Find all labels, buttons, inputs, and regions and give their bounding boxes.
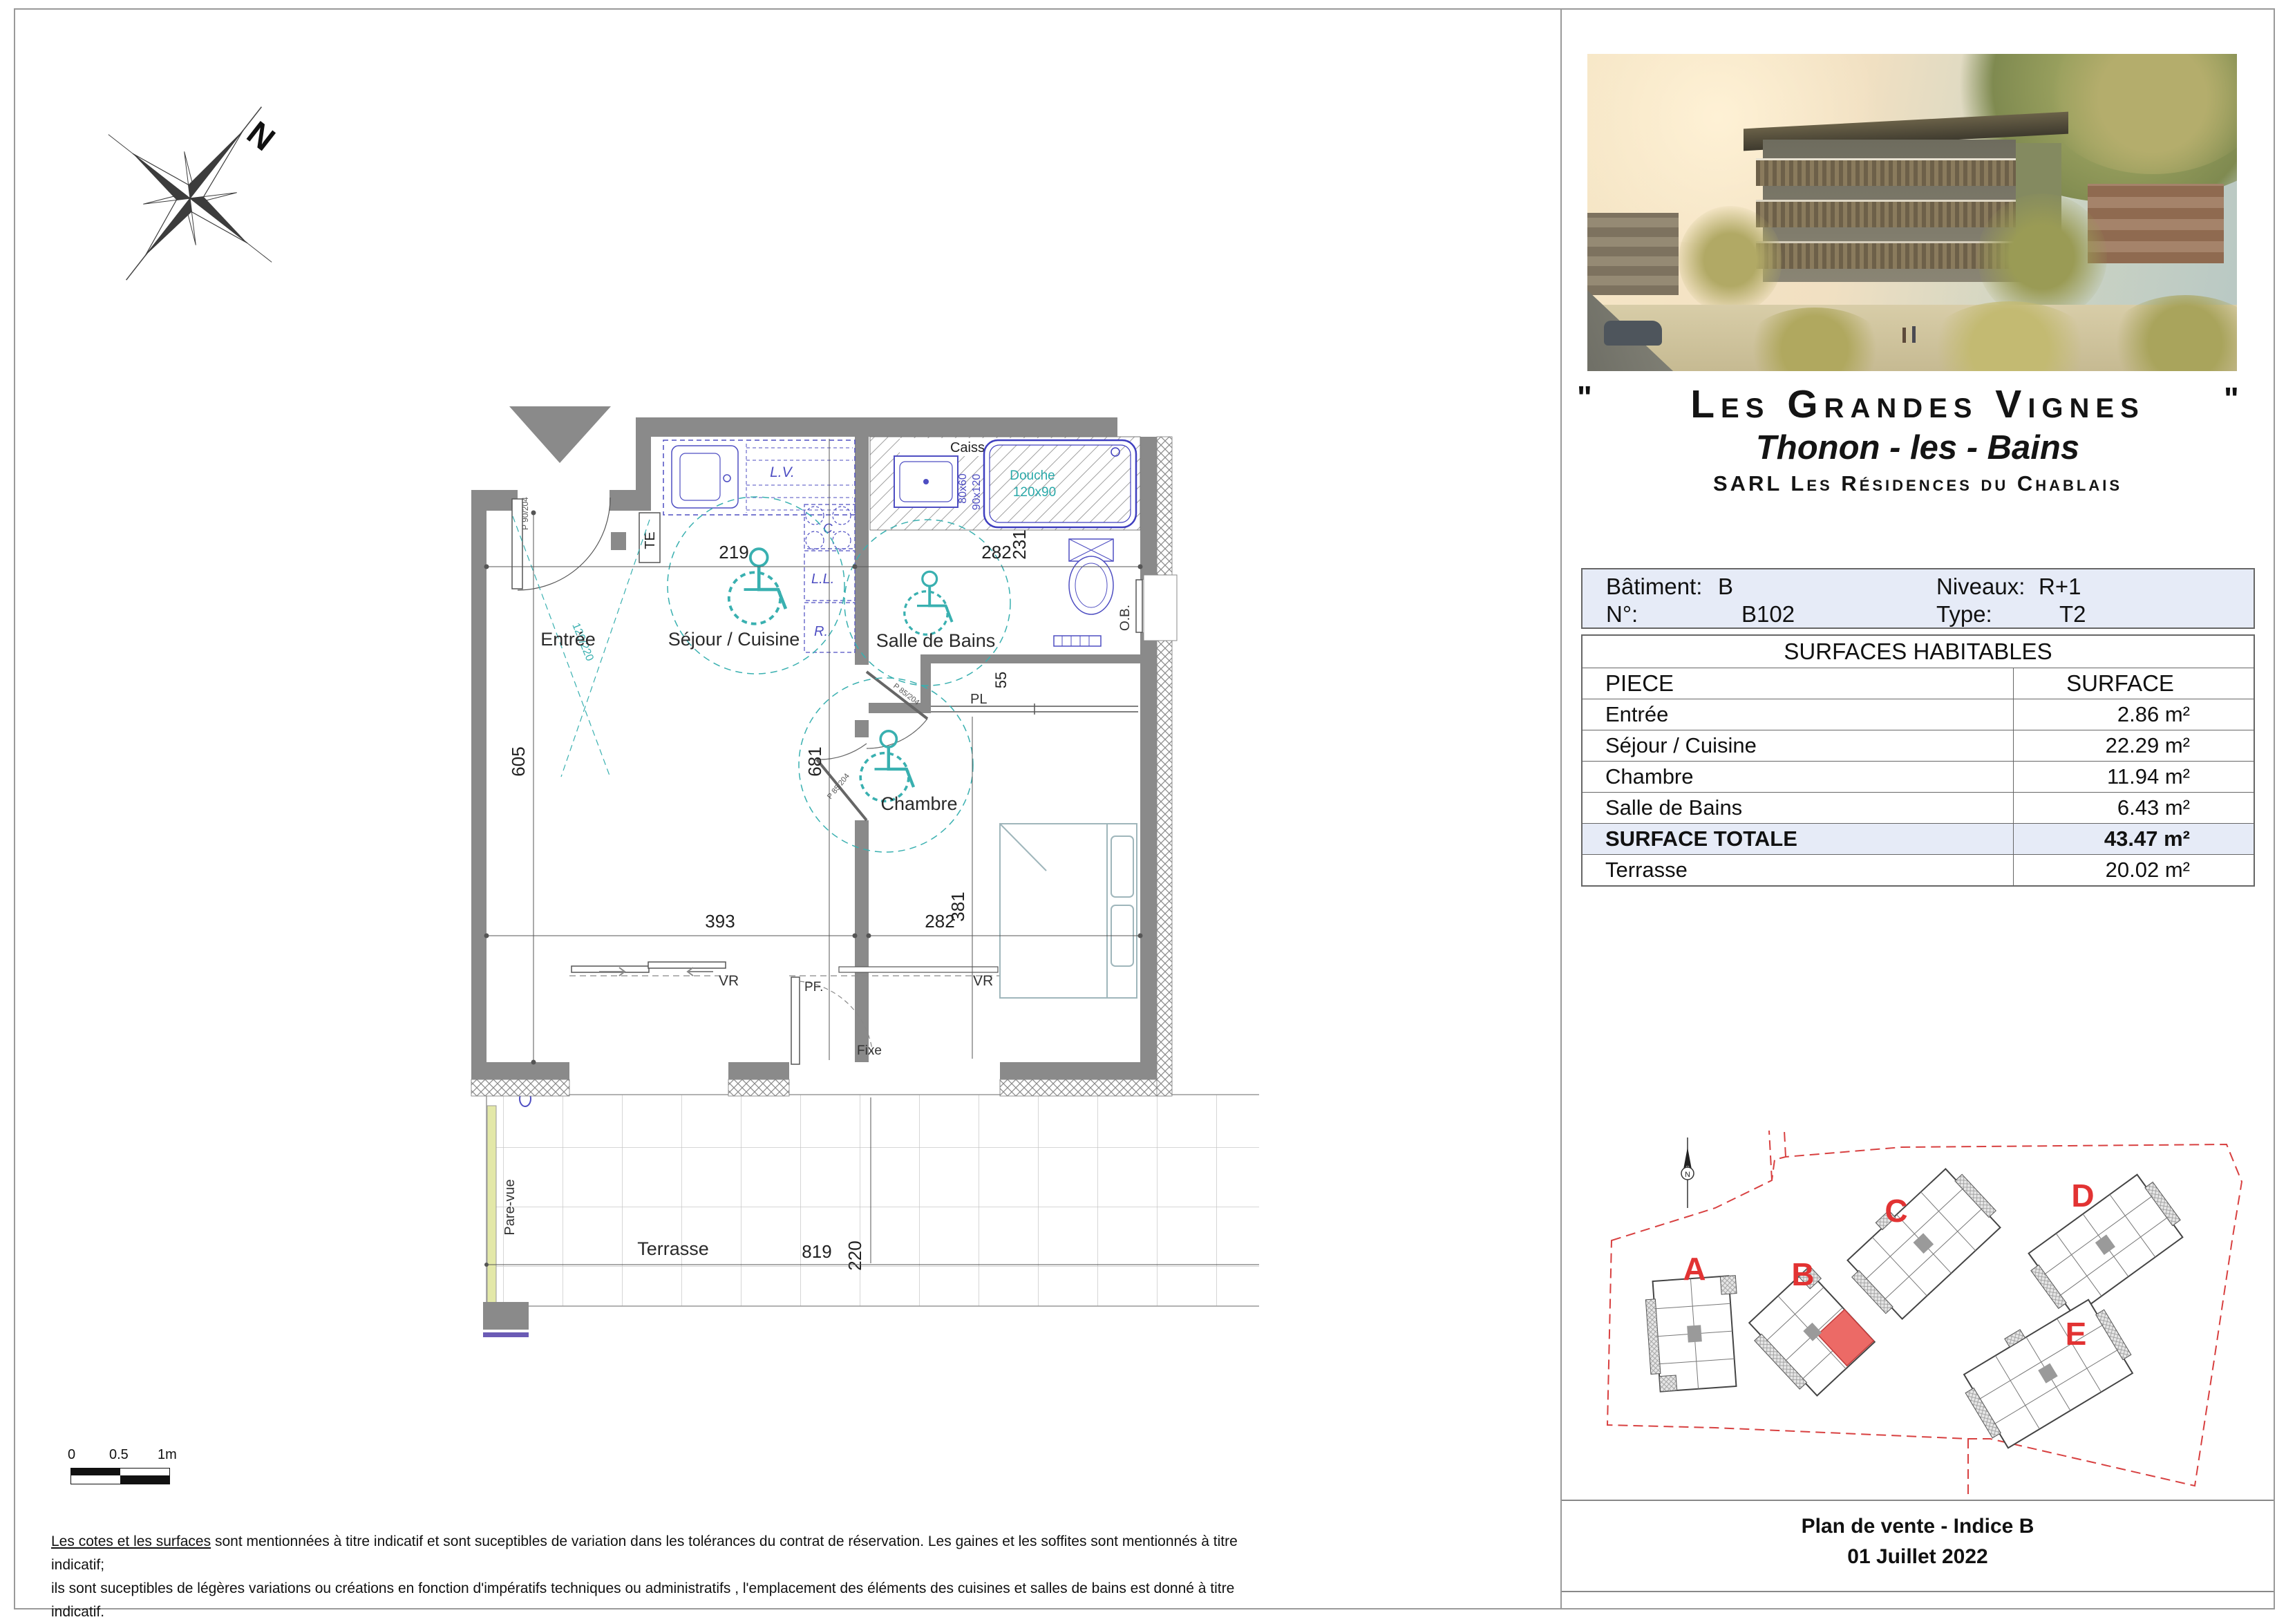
col-piece: PIECE — [1605, 668, 1674, 699]
wheelchair-icon — [905, 572, 952, 634]
building-photo — [1587, 54, 2237, 371]
plan-sheet: N — [15, 10, 1560, 1608]
kitchen-fixtures: L.V. C. L.L. R. — [663, 440, 855, 652]
col-surface: SURFACE — [2014, 668, 2254, 699]
numero-value: B102 — [1741, 601, 1795, 627]
photo-person — [1912, 326, 1916, 343]
surfaces-header: PIECE SURFACE — [1583, 668, 2254, 699]
niveaux-value: R+1 — [2039, 574, 2081, 600]
entry-door: P 90/204 — [512, 497, 610, 590]
page: N — [14, 8, 2275, 1609]
dim-282-top: 282 — [981, 542, 1011, 563]
room-label-entree: Entrée — [540, 629, 596, 650]
scale-05: 0.5 — [109, 1447, 129, 1463]
row-piece: Chambre — [1605, 762, 1694, 792]
dim-381: 381 — [947, 891, 968, 921]
total-label: SURFACE TOTALE — [1605, 824, 1797, 854]
photo-person — [1902, 328, 1906, 343]
window-ob: O.B. — [1118, 575, 1177, 641]
pare-vue-screen — [487, 1106, 496, 1306]
batiment-value: B — [1718, 574, 1733, 600]
label-r: R. — [814, 624, 828, 639]
bed — [1000, 824, 1137, 998]
photo-building-left — [1587, 213, 1679, 295]
project-city: Thonon - les - Bains — [1562, 428, 2274, 467]
room-label-chambre: Chambre — [880, 793, 957, 814]
type-label: Type: — [1936, 601, 1992, 627]
photo-tree — [1679, 206, 1782, 314]
footer-line1: Plan de vente - Indice B — [1562, 1515, 2274, 1538]
scale-bar: 0 0.5 1m — [55, 1447, 235, 1489]
surface-row: Chambre 11.94 m² — [1583, 761, 2254, 792]
label-lv: L.V. — [770, 464, 795, 480]
row-surface: 2.86 m² — [2014, 699, 2254, 730]
surfaces-title: SURFACES HABITABLES — [1583, 636, 2254, 668]
label-vr-1: VR — [719, 973, 739, 989]
dim-55: 55 — [992, 672, 1010, 688]
disclaimer-line1: sont mentionnées à titre indicatif et so… — [51, 1533, 1238, 1573]
wheelchair-icon — [860, 731, 914, 802]
label-pl: PL — [970, 692, 987, 707]
footer-line2: 01 Juillet 2022 — [1562, 1545, 2274, 1569]
label-douche-size: 120x90 — [1013, 485, 1056, 500]
surfaces-table: SURFACES HABITABLES PIECE SURFACE Entrée… — [1581, 634, 2255, 887]
dim-605: 605 — [508, 746, 529, 776]
project-title: Les Grandes Vignes — [1562, 381, 2274, 427]
window-chambre: PF. Fixe VR — [789, 967, 1000, 1064]
disclaimer: Les cotes et les surfaces sont mentionné… — [51, 1530, 1254, 1624]
disclaimer-line2: ils sont suceptibles de légères variatio… — [51, 1580, 1234, 1620]
terrasse-label: Terrasse — [1605, 855, 1688, 885]
total-value: 43.47 m² — [2014, 824, 2254, 854]
batiment-label: Bâtiment: — [1606, 574, 1702, 600]
label-douche: Douche — [1010, 469, 1055, 483]
surface-row: Séjour / Cuisine 22.29 m² — [1583, 730, 2254, 761]
site-building-a — [1645, 1276, 1744, 1392]
row-surface: 11.94 m² — [2014, 762, 2254, 792]
row-surface: 22.29 m² — [2014, 730, 2254, 761]
surface-row: Entrée 2.86 m² — [1583, 699, 2254, 730]
dim-231: 231 — [1009, 529, 1030, 559]
numero-label: N°: — [1606, 601, 1638, 627]
room-label-terrasse: Terrasse — [637, 1238, 709, 1259]
bay-window-sejour: VR — [569, 962, 739, 989]
site-building-label-e: E — [2066, 1316, 2087, 1352]
site-building-label-a: A — [1683, 1251, 1706, 1287]
pare-vue-label: Pare-vue — [502, 1179, 518, 1235]
site-building-e — [1952, 1287, 2140, 1453]
entrance-arrow-icon — [509, 406, 611, 463]
label-80x60: 80x60 — [957, 473, 969, 504]
label-pf: PF. — [804, 980, 823, 994]
type-value: T2 — [2059, 601, 2086, 627]
dim-681: 681 — [804, 746, 825, 776]
site-building-label-b: B — [1791, 1256, 1814, 1292]
row-piece: Salle de Bains — [1605, 793, 1742, 823]
site-building-d — [2022, 1170, 2189, 1321]
info-panel: " " Les Grandes Vignes Thonon - les - Ba… — [1560, 10, 2274, 1608]
unit-info-table: Bâtiment: B Niveaux: R+1 N°: B102 Type: … — [1581, 568, 2255, 629]
photo-building-right — [2088, 184, 2224, 263]
terrasse-value: 20.02 m² — [2014, 855, 2254, 885]
scale-1m: 1m — [158, 1447, 177, 1463]
label-ll: L.L. — [811, 572, 834, 587]
terrasse-area: Pare-vue Terrasse 220 819 — [483, 1091, 1259, 1337]
photo-car — [1604, 321, 1663, 346]
scale-0: 0 — [68, 1447, 75, 1463]
label-ob: O.B. — [1118, 605, 1133, 631]
site-plan: N — [1584, 1126, 2261, 1500]
disclaimer-lead: Les cotes et les surfaces — [51, 1533, 211, 1549]
site-north-label: N — [1685, 1171, 1690, 1179]
dim-220: 220 — [844, 1240, 865, 1270]
scale-bar-graphic — [70, 1468, 170, 1484]
site-north-arrow-icon: N — [1681, 1137, 1694, 1208]
row-piece: Séjour / Cuisine — [1605, 730, 1757, 761]
site-building-label-d: D — [2071, 1178, 2094, 1214]
surface-total-row: SURFACE TOTALE 43.47 m² — [1583, 823, 2254, 854]
toilet — [1069, 539, 1113, 614]
dim-219: 219 — [719, 542, 748, 563]
compass-rose-icon: N — [77, 81, 305, 309]
label-90x120: 90x120 — [971, 474, 983, 511]
radiator — [1054, 636, 1101, 646]
niveaux-label: Niveaux: — [1936, 574, 2025, 600]
dim-393: 393 — [705, 911, 735, 932]
label-vr-2: VR — [973, 973, 993, 989]
floor-plan: Pare-vue Terrasse 220 819 — [444, 375, 1259, 1342]
room-label-sdb: Salle de Bains — [876, 630, 996, 651]
surface-terrasse-row: Terrasse 20.02 m² — [1583, 854, 2254, 885]
room-label-sejour: Séjour / Cuisine — [668, 629, 800, 650]
project-company: SARL Les Résidences du Chablais — [1562, 471, 2274, 496]
photo-balcony — [1756, 158, 2016, 186]
dim-819: 819 — [802, 1241, 831, 1262]
label-fixe: Fixe — [857, 1044, 882, 1058]
site-building-label-c: C — [1884, 1193, 1907, 1229]
row-surface: 6.43 m² — [2014, 793, 2254, 823]
north-label: N — [240, 115, 281, 158]
photo-balcony — [1756, 200, 2016, 227]
surface-row: Salle de Bains 6.43 m² — [1583, 792, 2254, 823]
row-piece: Entrée — [1605, 699, 1668, 730]
label-door-entry: P 90/204 — [520, 497, 530, 530]
sale-footer: Plan de vente - Indice B 01 Juillet 2022 — [1562, 1500, 2274, 1592]
site-building-c — [1836, 1157, 2007, 1324]
